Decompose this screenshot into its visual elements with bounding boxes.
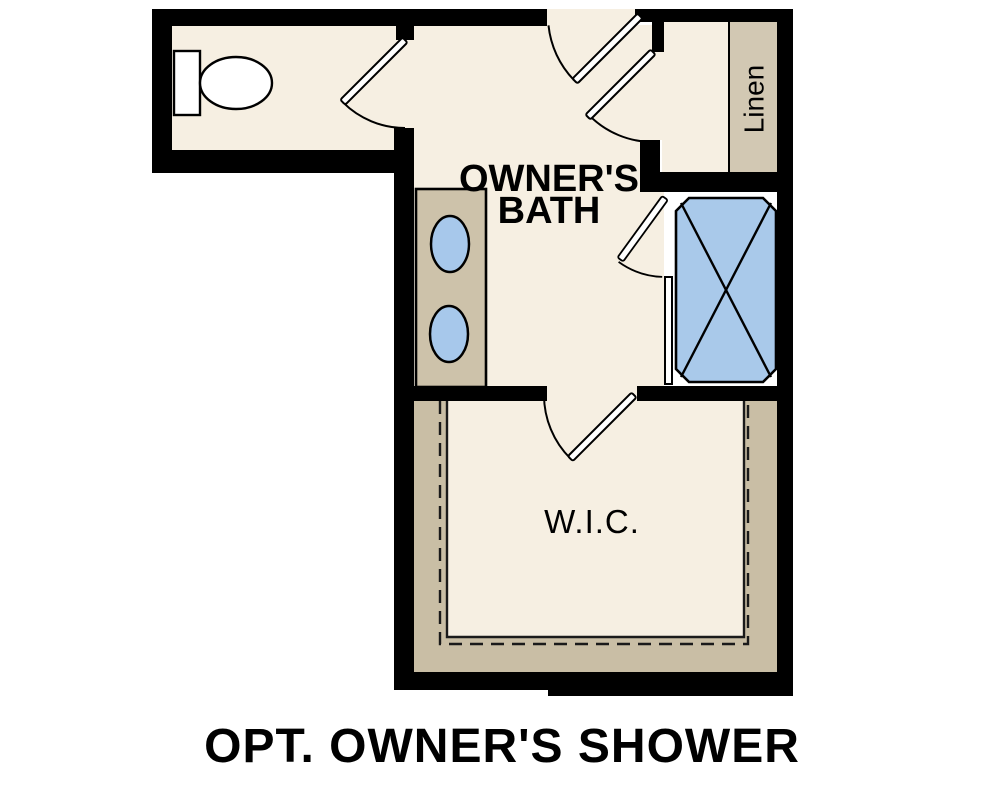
wall-left-vertical	[394, 128, 414, 690]
wall-bath-wic-right	[637, 386, 793, 401]
wall-linen-bottom	[640, 172, 793, 192]
shower-glass-panel	[665, 277, 672, 384]
toilet-bowl	[200, 57, 272, 109]
linen-label: Linen	[739, 65, 770, 134]
bath-entry-doorway-floor	[547, 9, 635, 26]
plan-title: OPT. OWNER'S SHOWER	[204, 720, 800, 773]
wic-doorway-floor	[547, 386, 637, 401]
wall-toilet-door-jamb	[396, 26, 414, 40]
sink-top	[431, 216, 469, 272]
floor-plan: OWNER'S BATH Linen W.I.C. OPT. OWNER'S S…	[0, 0, 1000, 800]
wall-bath-wic-left	[414, 386, 547, 401]
wall-toilet-bottom	[152, 150, 414, 173]
wall-top-right	[635, 9, 793, 22]
bath-label-line2: BATH	[498, 190, 601, 232]
wall-top-left	[152, 9, 547, 26]
wall-bottom-step	[548, 672, 793, 696]
wall-linen-bottom-stub	[640, 140, 660, 172]
toilet-tank	[174, 51, 200, 115]
wall-right-vertical	[777, 9, 793, 696]
linen-floor	[662, 22, 729, 172]
sink-bottom	[430, 306, 468, 362]
wall-toilet-left	[152, 9, 172, 173]
wall-linen-top-stub	[652, 22, 664, 52]
wic-label: W.I.C.	[544, 503, 640, 540]
shower-entry-floor	[655, 192, 665, 387]
